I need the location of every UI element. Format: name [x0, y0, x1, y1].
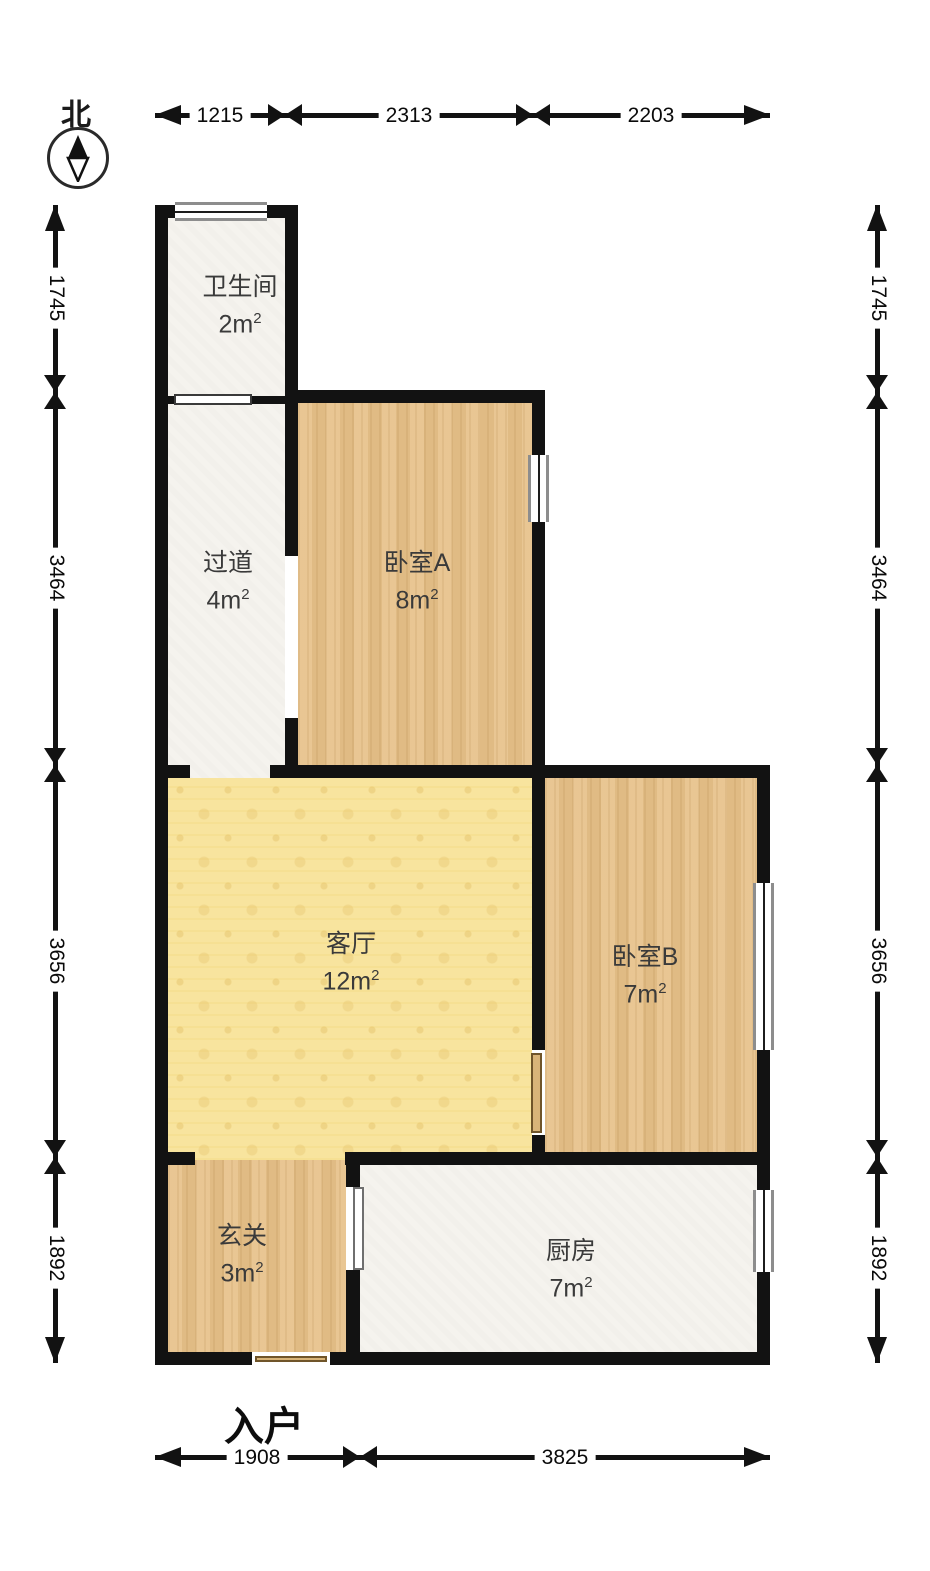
- wall-outer-left: [155, 205, 168, 1365]
- compass-needle-icon: [64, 134, 92, 182]
- wall-living-bottom-right: [345, 1152, 770, 1165]
- dim-tick-icon: [533, 104, 550, 126]
- room-name: 玄关: [167, 1221, 317, 1252]
- dim-tick-icon: [866, 1157, 888, 1174]
- room-name: 客厅: [276, 929, 426, 960]
- dim-label-left-1: 1745: [44, 268, 68, 329]
- dim-label-right-1: 1745: [866, 268, 890, 329]
- room-label-bedroom-a: 卧室A 8m2: [342, 548, 492, 616]
- wall-living-top-right: [270, 765, 770, 778]
- dim-tick-icon: [866, 392, 888, 409]
- wall-living-top-left: [155, 765, 190, 778]
- room-area: 4m2: [153, 579, 303, 616]
- wall-living-bedroom-b-upper: [532, 778, 545, 1050]
- dim-tick-icon: [44, 1157, 66, 1174]
- dim-arrow-icon: [45, 205, 65, 231]
- dim-label-top-3: 2203: [621, 104, 682, 128]
- wall-entry-kitchen-lower: [346, 1270, 360, 1365]
- dim-tick-icon: [268, 104, 285, 126]
- dim-label-left-2: 3464: [44, 548, 68, 609]
- dim-arrow-icon: [744, 1447, 770, 1467]
- door-bathroom-icon: [174, 394, 252, 405]
- wall-bottom-right: [330, 1352, 770, 1365]
- dim-label-bottom-2: 3825: [535, 1446, 596, 1470]
- room-name: 过道: [153, 548, 303, 579]
- dim-tick-icon: [866, 1140, 888, 1157]
- dim-tick-icon: [44, 765, 66, 782]
- dim-label-top-2: 2313: [379, 104, 440, 128]
- compass: [47, 127, 109, 189]
- room-area: 7m2: [570, 973, 720, 1010]
- dim-label-right-3: 3656: [866, 931, 890, 992]
- room-area: 12m2: [276, 960, 426, 997]
- dim-tick-icon: [44, 748, 66, 765]
- room-label-living-room: 客厅 12m2: [276, 929, 426, 997]
- wall-outer-right: [757, 765, 770, 1365]
- dim-tick-icon: [343, 1446, 360, 1468]
- window-bathroom-icon: [175, 202, 267, 221]
- dim-tick-icon: [866, 748, 888, 765]
- dim-arrow-icon: [45, 1337, 65, 1363]
- dim-tick-icon: [516, 104, 533, 126]
- dim-tick-icon: [866, 375, 888, 392]
- room-area: 2m2: [165, 303, 315, 340]
- room-name: 卫生间: [165, 272, 315, 303]
- dim-arrow-icon: [744, 105, 770, 125]
- dim-arrow-icon: [867, 1337, 887, 1363]
- dim-tick-icon: [866, 765, 888, 782]
- dim-arrow-icon: [155, 105, 181, 125]
- room-area: 3m2: [167, 1252, 317, 1289]
- room-name: 厨房: [496, 1236, 646, 1267]
- door-kitchen-icon: [353, 1187, 364, 1270]
- room-name: 卧室A: [342, 548, 492, 579]
- dim-arrow-icon: [155, 1447, 181, 1467]
- dim-tick-icon: [44, 392, 66, 409]
- room-label-bathroom: 卫生间 2m2: [165, 272, 315, 340]
- room-label-hallway: 过道 4m2: [153, 548, 303, 616]
- dim-tick-icon: [44, 1140, 66, 1157]
- room-name: 卧室B: [570, 942, 720, 973]
- wall-bedroom-a-left-upper: [285, 390, 298, 556]
- dim-label-right-2: 3464: [866, 548, 890, 609]
- room-label-entry: 玄关 3m2: [167, 1221, 317, 1289]
- wall-bedroom-a-top: [285, 390, 545, 403]
- dim-label-left-3: 3656: [44, 931, 68, 992]
- floor-plan: 北 卫生间 2m2 过道 4: [0, 0, 930, 1571]
- dim-label-top-1: 1215: [190, 104, 251, 128]
- dim-arrow-icon: [867, 205, 887, 231]
- dim-label-bottom-1: 1908: [227, 1446, 288, 1470]
- room-area: 8m2: [342, 579, 492, 616]
- door-entry-icon: [255, 1356, 327, 1362]
- dim-label-left-4: 1892: [44, 1228, 68, 1289]
- dim-label-right-4: 1892: [866, 1228, 890, 1289]
- room-label-kitchen: 厨房 7m2: [496, 1236, 646, 1304]
- window-kitchen-icon: [753, 1190, 774, 1272]
- wall-living-bottom-left: [155, 1152, 195, 1165]
- room-area: 7m2: [496, 1267, 646, 1304]
- door-bedroom-b-icon: [531, 1053, 542, 1133]
- dim-tick-icon: [44, 375, 66, 392]
- dim-tick-icon: [360, 1446, 377, 1468]
- dim-tick-icon: [285, 104, 302, 126]
- room-label-bedroom-b: 卧室B 7m2: [570, 942, 720, 1010]
- window-bedroom-a-icon: [528, 455, 549, 522]
- wall-entry-kitchen-upper: [346, 1165, 360, 1187]
- window-bedroom-b-icon: [753, 883, 774, 1050]
- wall-bedroom-a-right: [532, 390, 545, 778]
- wall-bottom-left: [155, 1352, 252, 1365]
- entrance-label: 入户: [204, 1394, 324, 1452]
